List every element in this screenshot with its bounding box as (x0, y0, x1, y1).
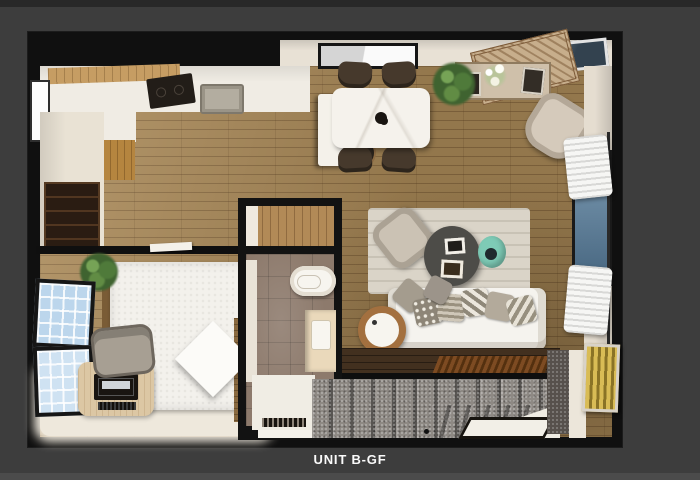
curtain (563, 134, 613, 200)
floor-plan-caption: UNIT B-GF (0, 452, 700, 467)
dresser (44, 182, 100, 248)
handrail-post (424, 429, 429, 434)
keyboard (98, 402, 136, 410)
table-tray (441, 259, 464, 278)
table-tray (444, 237, 465, 254)
floor-lamp (358, 306, 406, 354)
dining-chair (381, 145, 417, 173)
floor-lamp-bulb (372, 320, 377, 325)
wall-art (582, 343, 620, 412)
vanity (305, 310, 336, 372)
bathroom-wall-strip (246, 260, 257, 382)
stair-side-wall (547, 350, 571, 434)
side-table-decor (485, 248, 497, 260)
dining-chair (337, 61, 372, 89)
background-bottom-strip (0, 473, 700, 480)
background-top-strip (0, 0, 700, 7)
pendant-light (375, 112, 387, 124)
potted-plant (432, 60, 476, 108)
dining-chair (381, 61, 417, 89)
monitor (94, 374, 138, 400)
floor-plan-render (28, 32, 622, 447)
shower-drain (262, 418, 306, 427)
dining-chair (337, 145, 372, 173)
bedroom-window (32, 278, 95, 349)
bathroom-entry-wall (246, 206, 258, 246)
doormat (458, 417, 556, 439)
bathroom-door (258, 430, 320, 438)
cooktop (146, 73, 196, 109)
kitchen-sink (200, 84, 244, 114)
picture-frame (521, 67, 546, 95)
desk-chair (90, 323, 157, 379)
toilet (290, 266, 336, 296)
staircase (312, 379, 560, 438)
curtain (563, 264, 613, 336)
screenshot-root: { "caption": { "title": "UNIT B-GF" }, "… (0, 0, 700, 480)
flower-vase (480, 58, 510, 94)
bathroom-entry-floor (246, 206, 334, 246)
